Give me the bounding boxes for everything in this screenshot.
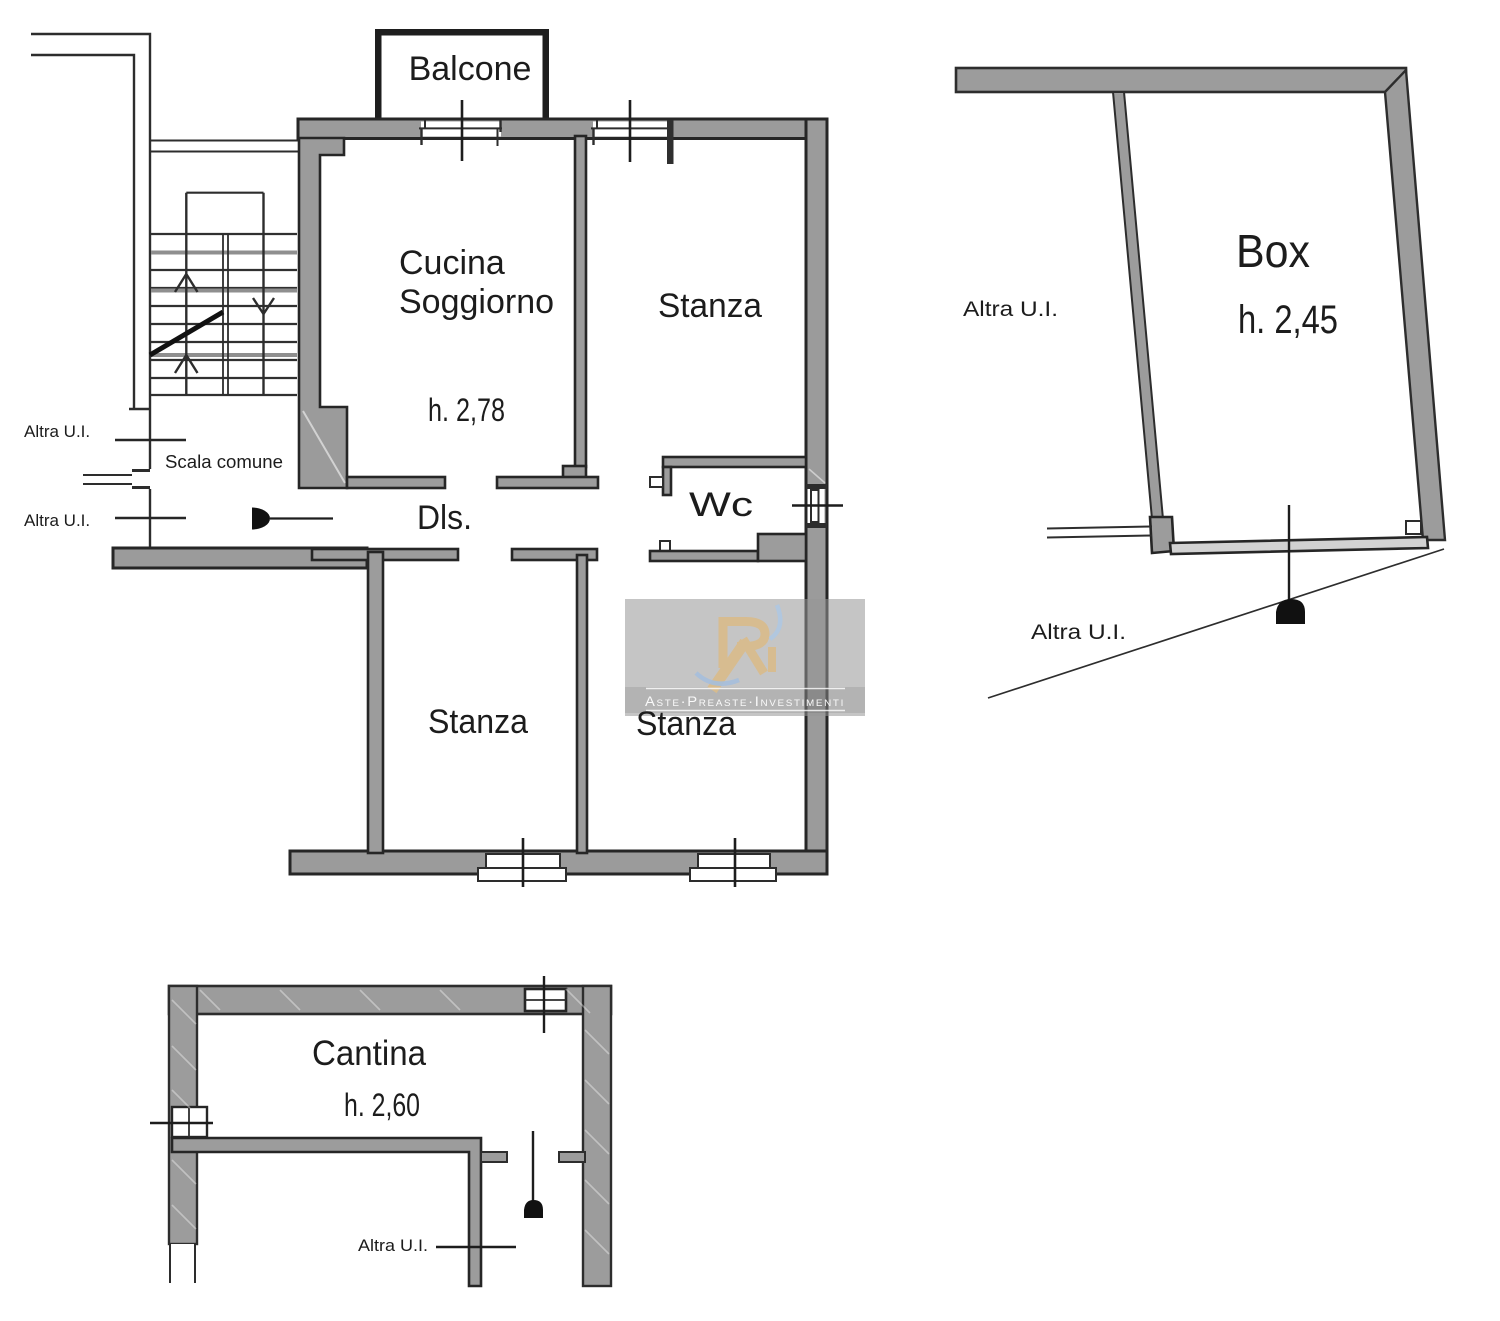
svg-text:Cantina: Cantina xyxy=(312,1034,427,1073)
svg-text:Altra U.I.: Altra U.I. xyxy=(24,511,90,530)
svg-text:h. 2,78: h. 2,78 xyxy=(428,392,505,428)
svg-text:h. 2,45: h. 2,45 xyxy=(1238,298,1338,342)
svg-text:Wc: Wc xyxy=(689,486,753,524)
svg-text:Stanza: Stanza xyxy=(428,703,528,741)
svg-text:Altra U.I.: Altra U.I. xyxy=(1031,621,1126,644)
svg-text:Cucina: Cucina xyxy=(399,244,505,282)
svg-text:Box: Box xyxy=(1236,225,1310,277)
svg-text:Stanza: Stanza xyxy=(658,287,762,325)
svg-text:h. 2,60: h. 2,60 xyxy=(344,1087,420,1123)
svg-text:Soggiorno: Soggiorno xyxy=(399,283,554,321)
svg-text:Dls.: Dls. xyxy=(417,499,472,537)
svg-text:Scala comune: Scala comune xyxy=(165,452,283,472)
svg-text:Balcone: Balcone xyxy=(409,50,532,88)
svg-text:Altra U.I.: Altra U.I. xyxy=(963,298,1058,321)
svg-text:Altra U.I.: Altra U.I. xyxy=(358,1236,428,1255)
svg-text:Altra U.I.: Altra U.I. xyxy=(24,422,90,441)
svg-text:Stanza: Stanza xyxy=(636,705,736,743)
